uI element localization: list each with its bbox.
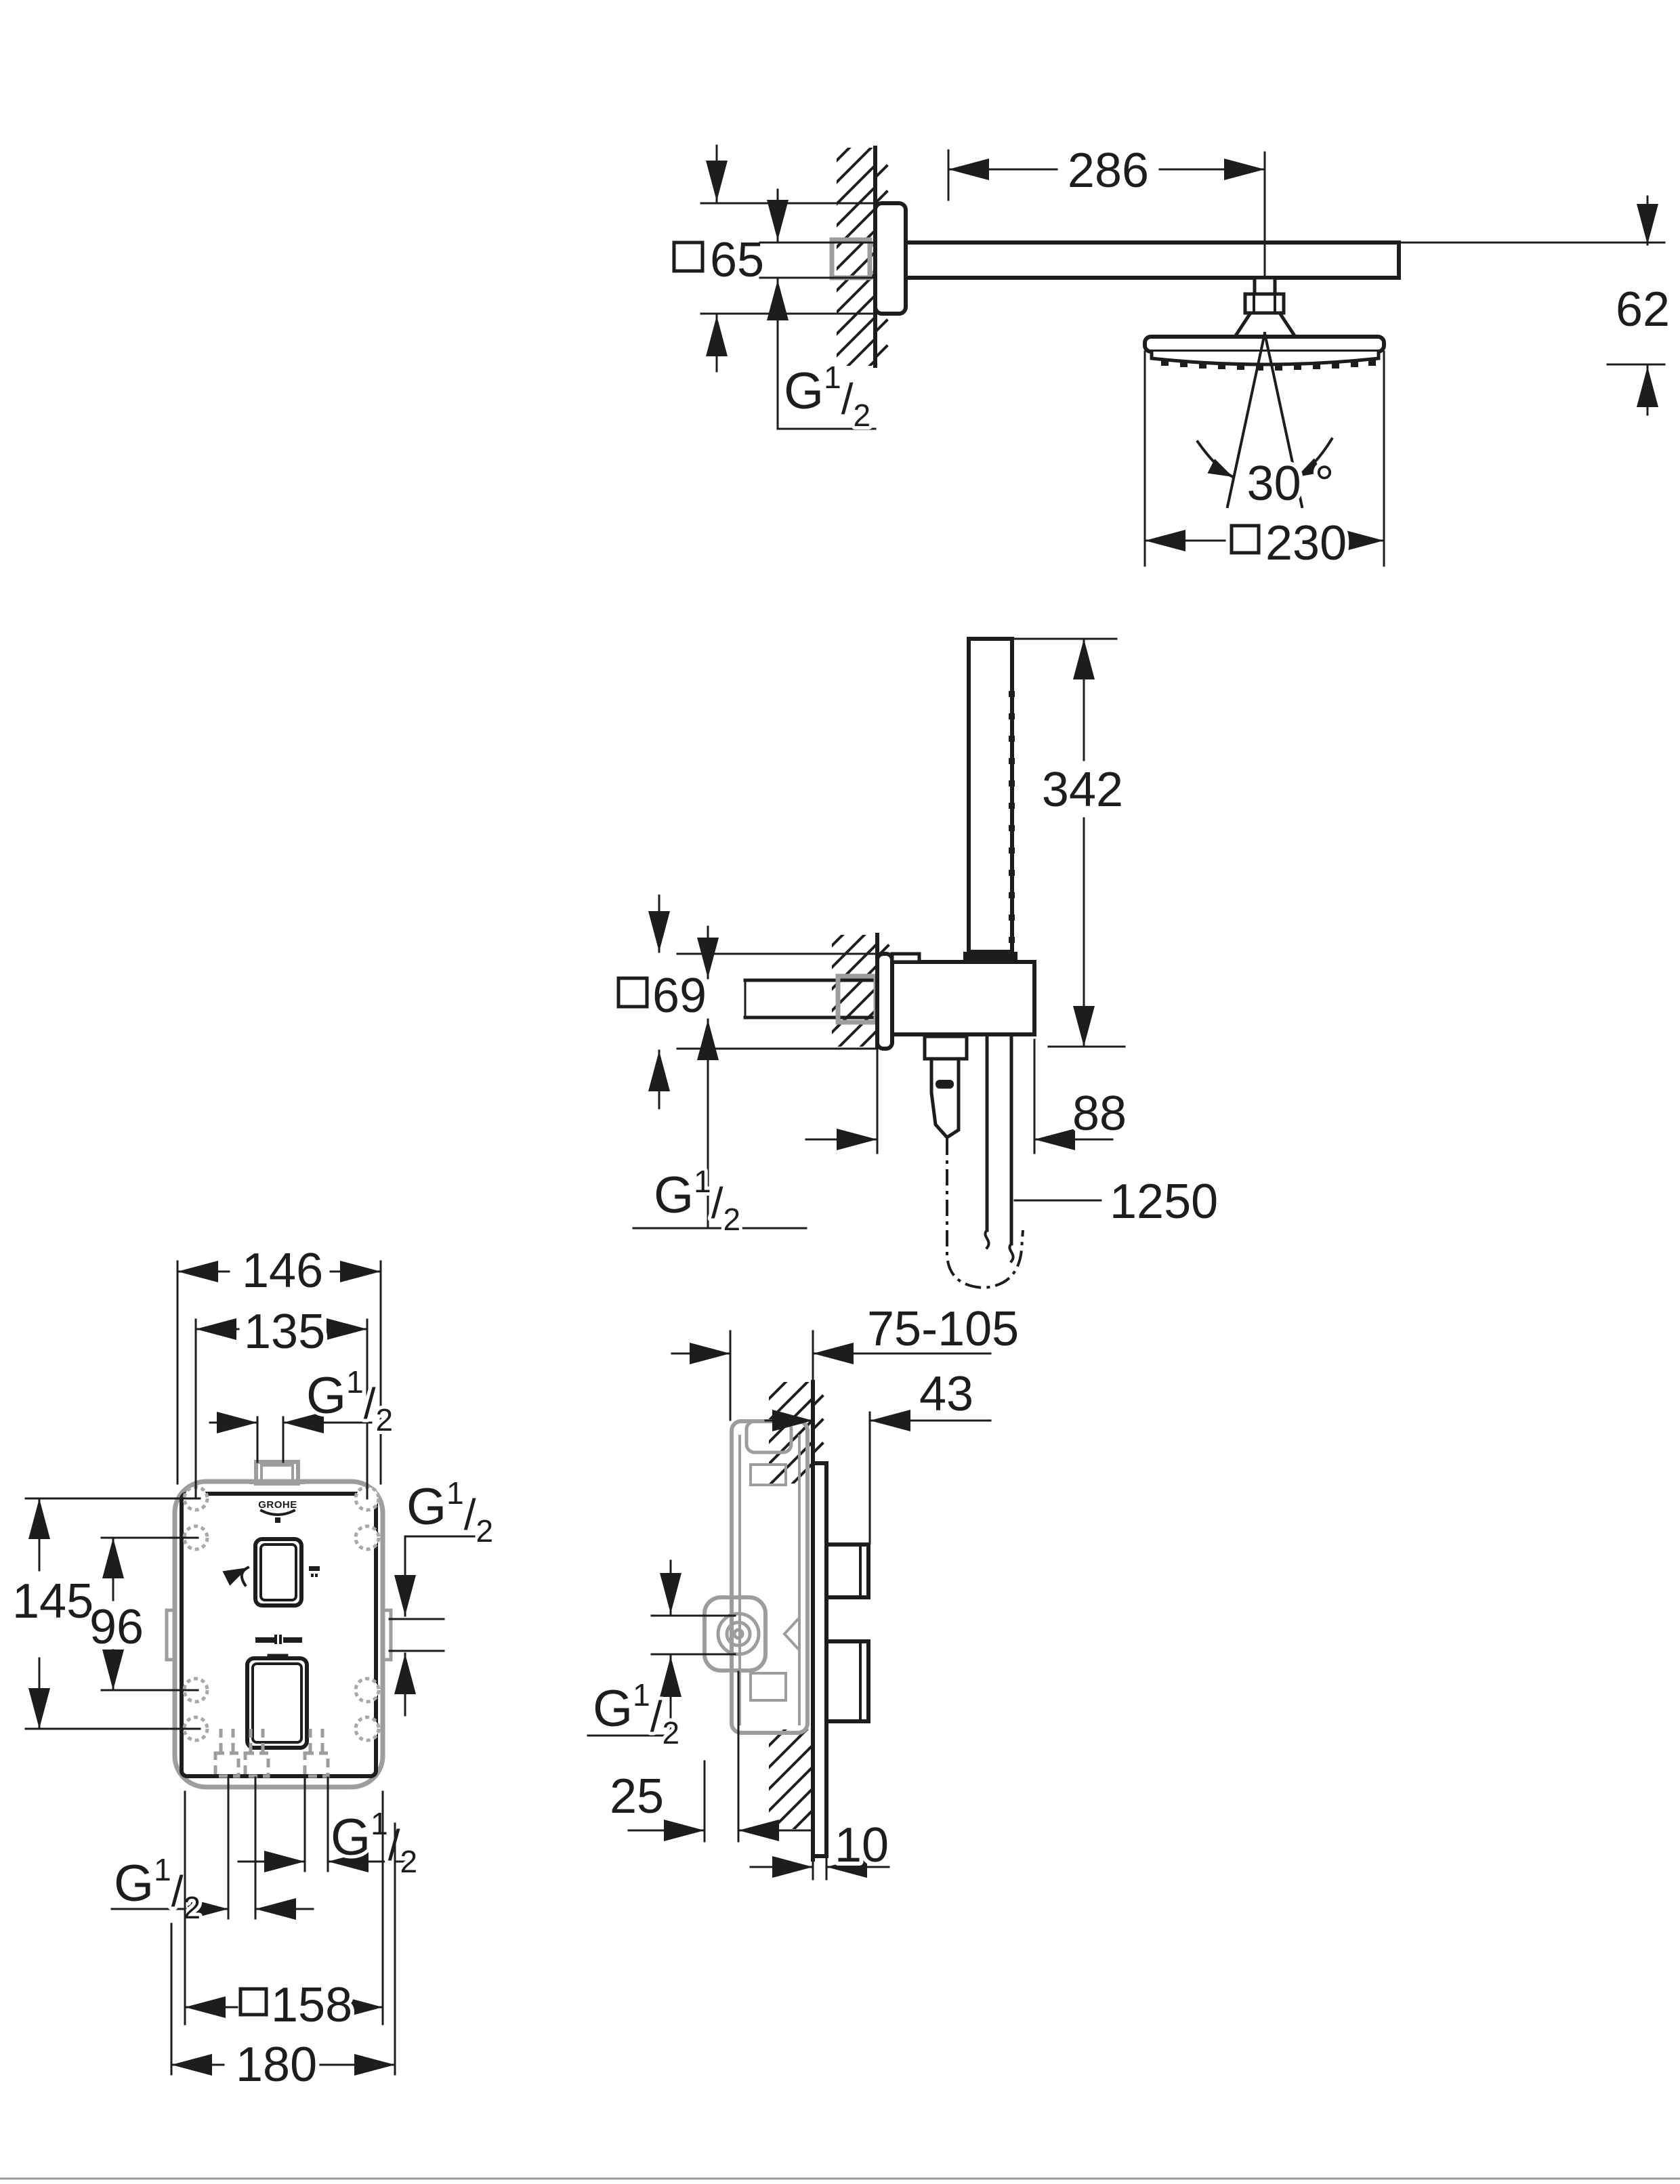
dim-label: 25 <box>610 1769 664 1824</box>
wall-hatch-lower <box>769 1729 813 1829</box>
dim-label: 286 <box>1068 144 1149 198</box>
dim-label: 135 <box>244 1305 325 1359</box>
dim-label: 65 <box>710 233 764 287</box>
dim-label: 146 <box>242 1244 323 1298</box>
dim-label: 75-105 <box>867 1302 1019 1356</box>
handle <box>969 639 1012 952</box>
flow-triangle-icon <box>784 1618 799 1650</box>
dim-label: 96 <box>89 1600 144 1654</box>
thread-label-inlet: G1/2 <box>588 1561 735 1750</box>
square-symbol-icon <box>674 243 702 271</box>
dim-286: 286 <box>948 144 1265 200</box>
thread-label-side-port: G1/2 <box>390 1475 493 1715</box>
dim-146: 146 <box>177 1244 381 1484</box>
drawing-page: 286 65 G1/2 62 <box>0 0 1680 2184</box>
thread-size-label: G1/2 <box>784 360 870 433</box>
outlet-escutcheon <box>877 954 892 1049</box>
dim-label: 145 <box>12 1574 93 1629</box>
logo-text: GROHE <box>258 1499 297 1511</box>
dim-1250: 1250 <box>1015 1175 1218 1229</box>
square-symbol-icon <box>618 978 647 1007</box>
dim-label: 1250 <box>1110 1175 1218 1229</box>
shower-holder <box>892 954 1034 1034</box>
thread-label-bottom-left: G1/2 <box>112 1778 313 1925</box>
spray-outlet <box>925 1036 1023 1288</box>
dim-label: 43 <box>919 1367 973 1421</box>
thread-size-label: G1/2 <box>114 1852 201 1925</box>
head-connector <box>1235 278 1295 337</box>
thread-size-label: G1/2 <box>406 1475 493 1549</box>
arm-escutcheon <box>875 203 906 314</box>
view-mixer-front: GROHE <box>12 1244 493 2092</box>
dim-label: 30 ° <box>1247 457 1335 511</box>
dim-label: 88 <box>1072 1087 1127 1141</box>
square-symbol-icon <box>240 1989 266 2015</box>
dim-label: 69 <box>652 969 707 1023</box>
upper-knob-section <box>826 1545 868 1597</box>
thread-label-bottom-right: G1/2 <box>238 1778 417 1879</box>
dim-label: 158 <box>271 1978 352 2032</box>
temperature-knob <box>247 1656 307 1748</box>
dim-label: 342 <box>1042 763 1123 817</box>
shower-head <box>1145 337 1384 371</box>
dim-62: 62 <box>1399 196 1670 415</box>
thread-label-top-port: G1/2 <box>210 1364 393 1462</box>
shower-hose <box>985 1034 1013 1261</box>
view-mixer-side: 75-105 43 G1/2 25 <box>588 1302 1019 1879</box>
square-symbol-icon <box>1232 526 1259 553</box>
dim-label: 10 <box>835 1818 889 1872</box>
side-port-right <box>383 1610 391 1660</box>
side-port-left <box>167 1610 175 1660</box>
view-hand-shower: 342 69 G1/2 88 1250 <box>618 639 1218 1288</box>
technical-drawing: 286 65 G1/2 62 <box>0 0 1680 2184</box>
lower-knob-section <box>826 1641 868 1721</box>
knob-sections <box>826 1545 868 1721</box>
shower-arm <box>906 243 1399 278</box>
handle-cap <box>963 952 1017 963</box>
thread-size-label: G1/2 <box>654 1164 740 1237</box>
hand-shower <box>963 639 1017 963</box>
thread-size-label: G1/2 <box>593 1677 679 1750</box>
view-head-shower: 286 65 G1/2 62 <box>674 144 1670 570</box>
thread-size-label: G1/2 <box>331 1806 417 1879</box>
dim-label: 230 <box>1265 516 1347 570</box>
dim-label: 62 <box>1616 282 1670 337</box>
knurled-nut <box>925 1036 967 1059</box>
dim-label: 180 <box>236 2038 317 2092</box>
